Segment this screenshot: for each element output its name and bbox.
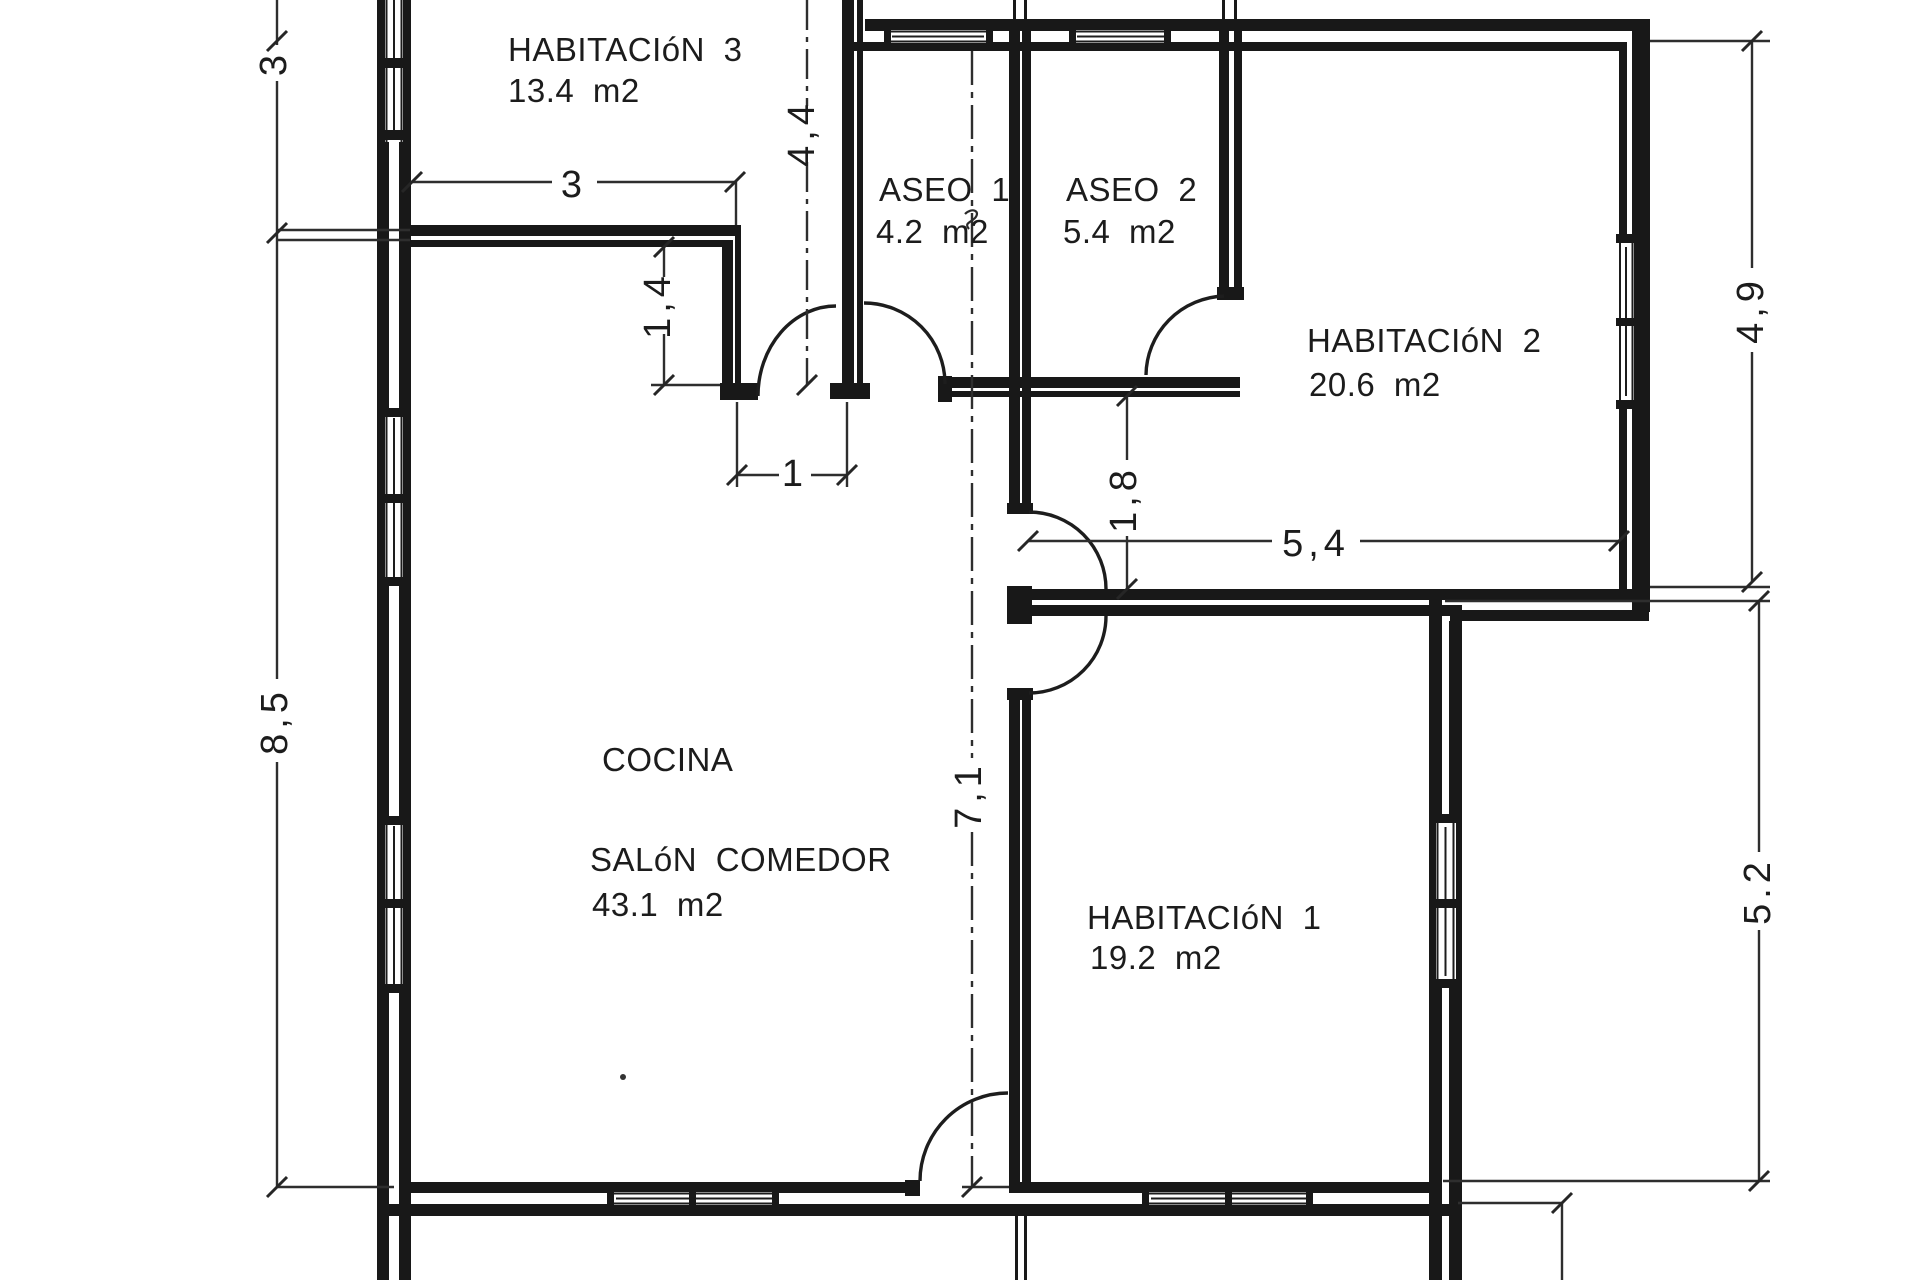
svg-text:1: 1 [782,453,808,495]
svg-text:4.2 m2: 4.2 m2 [876,213,989,250]
svg-text:5.4 m2: 5.4 m2 [1063,213,1176,250]
svg-text:4,4: 4,4 [781,99,823,167]
svg-text:13.4 m2: 13.4 m2 [508,72,640,109]
svg-text:1,8: 1,8 [1103,465,1145,533]
svg-text:ASEO 1: ASEO 1 [879,171,1010,208]
svg-text:5,4: 5,4 [1282,523,1350,565]
svg-text:3: 3 [253,50,295,76]
svg-text:HABITACIóN 2: HABITACIóN 2 [1307,322,1541,359]
svg-text:19.2 m2: 19.2 m2 [1090,939,1222,976]
svg-text:4,9: 4,9 [1730,276,1772,344]
svg-text:1,4: 1,4 [637,271,679,339]
svg-text:HABITACIóN 1: HABITACIóN 1 [1087,899,1321,936]
svg-text:3: 3 [561,164,587,206]
svg-text:COCINA: COCINA [602,741,733,778]
svg-text:5.2: 5.2 [1737,857,1779,925]
svg-text:7,1: 7,1 [948,761,990,829]
svg-text:HABITACIóN 3: HABITACIóN 3 [508,31,742,68]
svg-text:ASEO 2: ASEO 2 [1066,171,1197,208]
svg-text:43.1 m2: 43.1 m2 [592,886,724,923]
svg-text:8,5: 8,5 [254,687,296,755]
svg-text:20.6 m2: 20.6 m2 [1309,366,1441,403]
svg-text:SALóN COMEDOR: SALóN COMEDOR [590,841,892,878]
